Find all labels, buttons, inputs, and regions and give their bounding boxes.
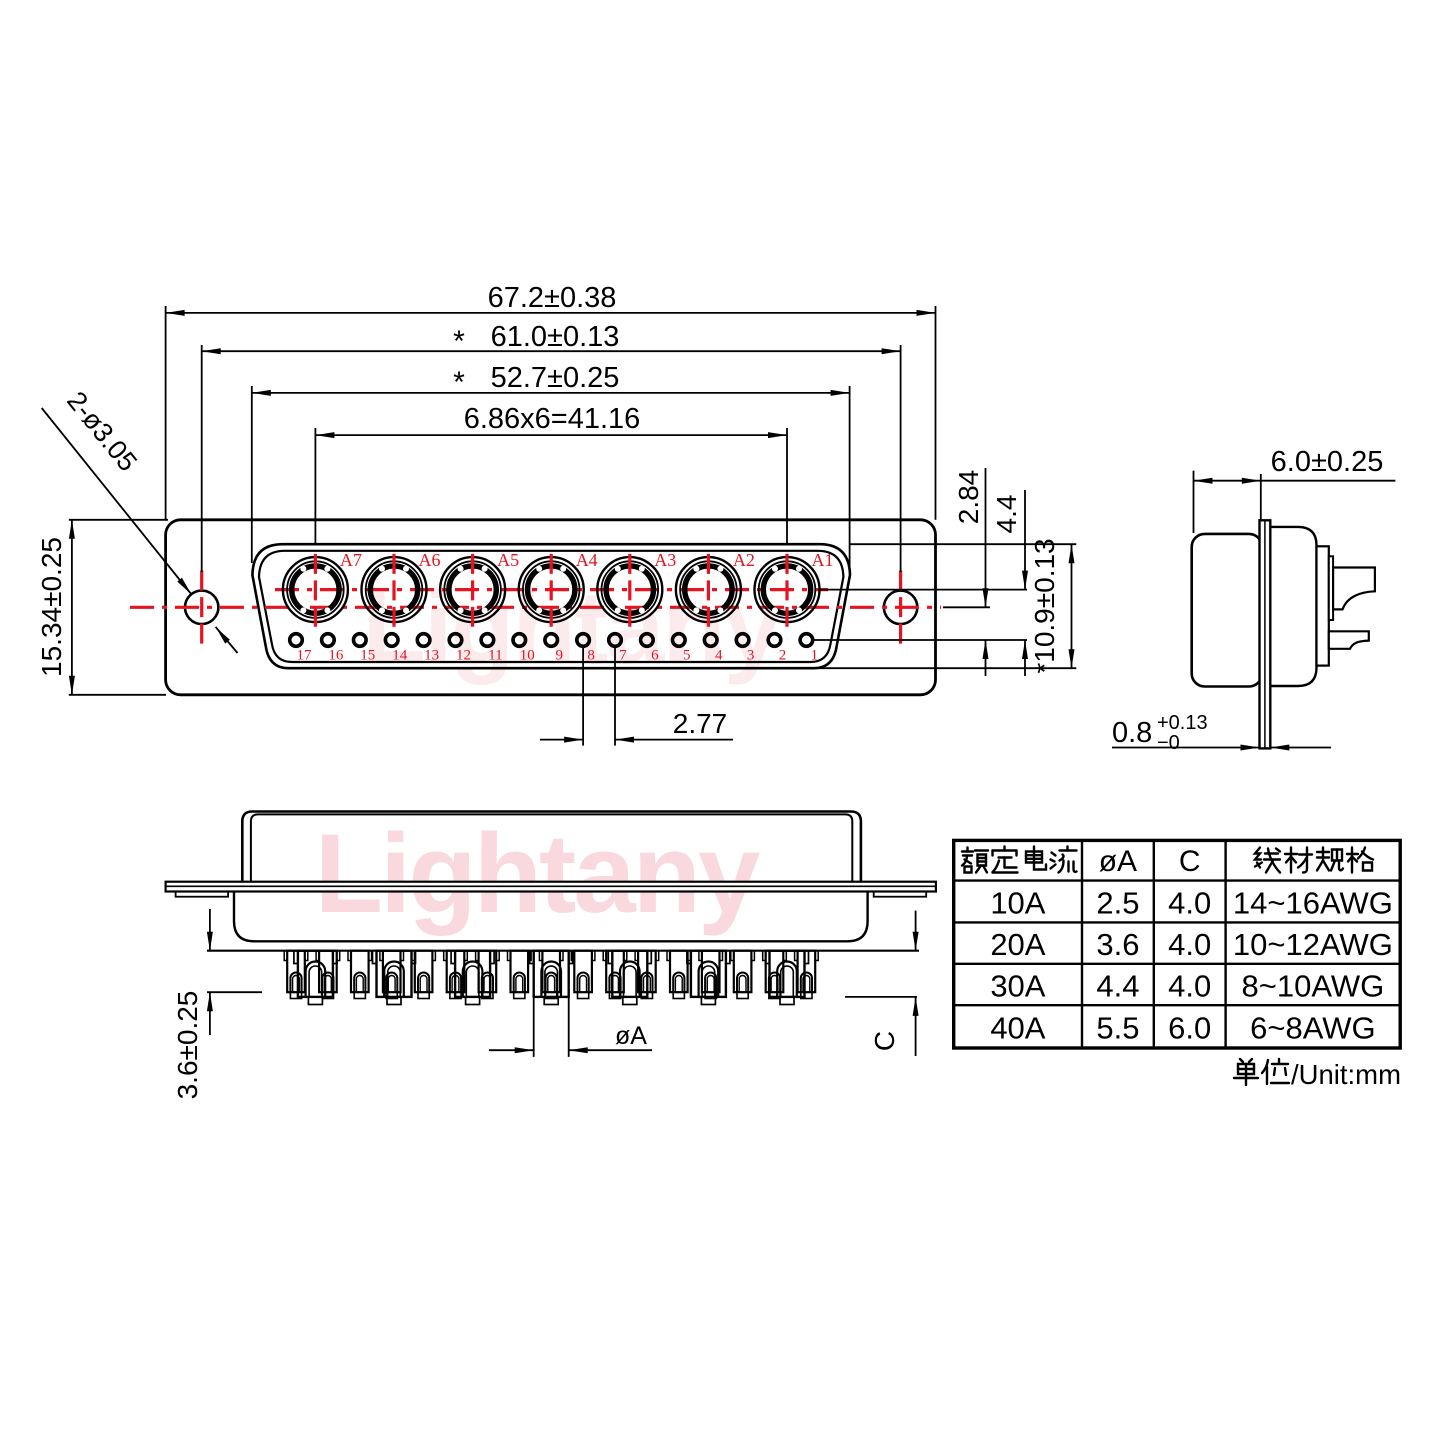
svg-text:2.5: 2.5: [1096, 886, 1139, 921]
svg-text:A7: A7: [340, 550, 362, 570]
svg-text:40A: 40A: [990, 1011, 1045, 1046]
svg-text:6~8AWG: 6~8AWG: [1250, 1011, 1375, 1046]
svg-text:*: *: [453, 325, 465, 358]
svg-text:*: *: [453, 366, 465, 399]
svg-text:4.0: 4.0: [1168, 969, 1211, 1004]
svg-text:/Unit:mm: /Unit:mm: [1291, 1059, 1401, 1090]
svg-text:8~10AWG: 8~10AWG: [1242, 969, 1385, 1004]
svg-text:C: C: [869, 1031, 900, 1051]
svg-text:A6: A6: [419, 550, 441, 570]
svg-text:10A: 10A: [990, 886, 1045, 921]
svg-text:2: 2: [779, 648, 787, 664]
svg-text:4.0: 4.0: [1168, 886, 1211, 921]
svg-text:+0.13: +0.13: [1157, 712, 1208, 734]
svg-text:12: 12: [456, 648, 471, 664]
svg-text:67.2±0.38: 67.2±0.38: [488, 282, 617, 314]
svg-text:A5: A5: [497, 550, 519, 570]
svg-text:5.5: 5.5: [1096, 1011, 1139, 1046]
svg-text:20A: 20A: [990, 927, 1045, 962]
svg-text:15: 15: [360, 648, 375, 664]
svg-text:4: 4: [715, 648, 723, 664]
svg-text:15.34±0.25: 15.34±0.25: [36, 537, 67, 677]
svg-text:4.4: 4.4: [991, 495, 1022, 534]
svg-text:1: 1: [811, 648, 819, 664]
svg-text:17: 17: [297, 648, 313, 664]
svg-text:A4: A4: [576, 550, 598, 570]
svg-text:8: 8: [587, 648, 595, 664]
svg-text:3: 3: [747, 648, 755, 664]
svg-text:øA: øA: [615, 1022, 647, 1050]
svg-text:C: C: [1179, 845, 1201, 878]
svg-text:A2: A2: [733, 550, 755, 570]
svg-text:61.0±0.13: 61.0±0.13: [491, 321, 620, 353]
svg-text:øA: øA: [1099, 845, 1137, 878]
svg-text:Lightany: Lightany: [315, 811, 760, 936]
svg-text:14~16AWG: 14~16AWG: [1233, 886, 1393, 921]
svg-text:*10.9±0.13: *10.9±0.13: [1029, 538, 1060, 673]
svg-text:4.0: 4.0: [1168, 927, 1211, 962]
svg-text:5: 5: [683, 648, 691, 664]
svg-text:10~12AWG: 10~12AWG: [1233, 927, 1393, 962]
svg-text:7: 7: [619, 648, 627, 664]
svg-text:11: 11: [488, 648, 502, 664]
svg-text:14: 14: [392, 648, 408, 664]
svg-text:6.86x6=41.16: 6.86x6=41.16: [464, 403, 641, 435]
svg-text:A3: A3: [654, 550, 676, 570]
svg-text:6.0: 6.0: [1168, 1011, 1211, 1046]
svg-text:52.7±0.25: 52.7±0.25: [491, 362, 620, 394]
svg-text:A1: A1: [812, 550, 834, 570]
svg-text:30A: 30A: [990, 969, 1045, 1004]
svg-text:3.6±0.25: 3.6±0.25: [172, 991, 203, 1100]
svg-text:4.4: 4.4: [1096, 969, 1139, 1004]
svg-text:3.6: 3.6: [1096, 927, 1139, 962]
svg-text:9: 9: [555, 648, 563, 664]
svg-text:10: 10: [520, 648, 535, 664]
svg-text:0.8: 0.8: [1112, 717, 1152, 749]
svg-text:2.84: 2.84: [953, 470, 984, 525]
svg-text:2.77: 2.77: [673, 708, 728, 739]
svg-text:−0: −0: [1157, 732, 1180, 754]
svg-text:6: 6: [651, 648, 659, 664]
svg-text:16: 16: [328, 648, 344, 664]
svg-text:6.0±0.25: 6.0±0.25: [1271, 446, 1384, 478]
svg-text:13: 13: [424, 648, 439, 664]
